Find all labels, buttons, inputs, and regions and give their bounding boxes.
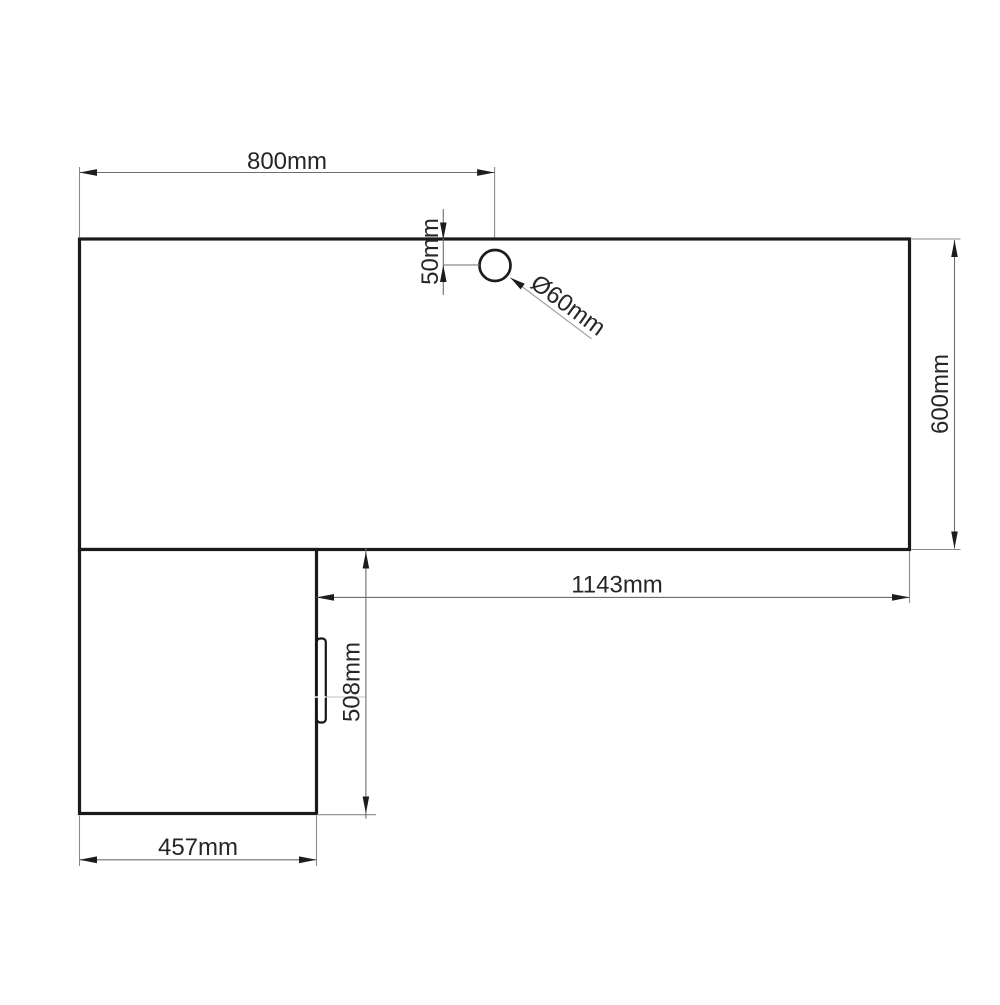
svg-text:600mm: 600mm xyxy=(927,354,954,434)
svg-text:50mm: 50mm xyxy=(417,218,444,285)
svg-text:1143mm: 1143mm xyxy=(571,572,663,599)
svg-text:457mm: 457mm xyxy=(158,834,238,861)
svg-text:508mm: 508mm xyxy=(339,642,366,722)
svg-text:800mm: 800mm xyxy=(247,148,327,175)
